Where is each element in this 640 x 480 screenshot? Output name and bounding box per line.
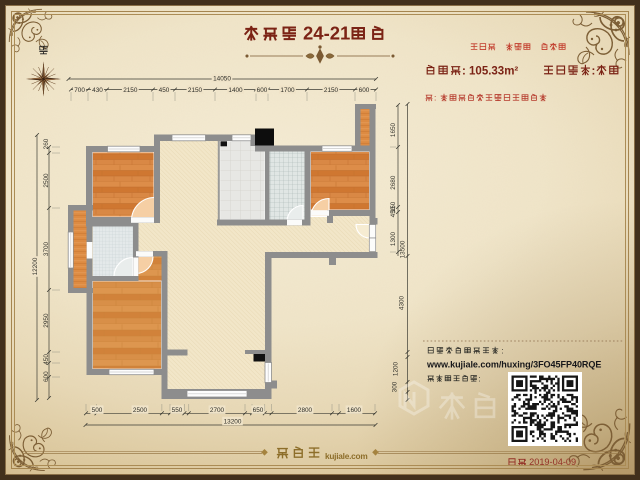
svg-text:500: 500 — [92, 407, 103, 414]
svg-text:550: 550 — [172, 407, 183, 414]
svg-text:2950: 2950 — [43, 313, 50, 328]
svg-text:1700: 1700 — [280, 87, 295, 94]
svg-text:2150: 2150 — [188, 87, 203, 94]
svg-text:1600: 1600 — [347, 407, 362, 414]
svg-text:2150: 2150 — [123, 87, 138, 94]
svg-text:2680: 2680 — [390, 175, 397, 190]
svg-text:450: 450 — [159, 87, 170, 94]
svg-text:700: 700 — [74, 87, 85, 94]
svg-text::: : — [434, 93, 436, 103]
svg-text:13200: 13200 — [224, 418, 242, 425]
svg-text:260: 260 — [43, 138, 50, 149]
svg-text::: : — [502, 347, 504, 356]
svg-text:1400: 1400 — [228, 87, 243, 94]
svg-text:450: 450 — [43, 354, 50, 365]
svg-text:600: 600 — [257, 87, 268, 94]
svg-text:: 2019-04-09: : 2019-04-09 — [524, 457, 576, 467]
svg-text:12200: 12200 — [32, 257, 39, 275]
svg-text::: : — [479, 375, 481, 384]
svg-text:2150: 2150 — [324, 87, 339, 94]
svg-text::: : — [592, 66, 596, 78]
svg-text:13500: 13500 — [399, 240, 406, 258]
svg-text:2500: 2500 — [133, 407, 148, 414]
svg-text:3700: 3700 — [43, 241, 50, 256]
svg-text:2500: 2500 — [43, 173, 50, 188]
svg-text:kujiale.com: kujiale.com — [325, 451, 367, 461]
svg-text:14050: 14050 — [213, 75, 231, 82]
svg-text:www.kujiale.com/huxing/3FO45FP: www.kujiale.com/huxing/3FO45FP40RQE — [426, 360, 601, 370]
svg-text:650: 650 — [253, 407, 264, 414]
svg-text:: 105.33m²: : 105.33m² — [462, 66, 518, 78]
svg-text:450: 450 — [390, 206, 397, 217]
svg-text:1300: 1300 — [390, 231, 397, 246]
svg-text:2700: 2700 — [210, 407, 225, 414]
svg-text:4300: 4300 — [398, 295, 405, 310]
svg-text:600: 600 — [43, 371, 50, 382]
svg-text:300: 300 — [391, 381, 398, 392]
svg-text:1650: 1650 — [390, 122, 397, 137]
svg-text:1200: 1200 — [392, 361, 399, 376]
svg-text:430: 430 — [92, 87, 103, 94]
svg-text:24-21: 24-21 — [303, 23, 350, 44]
svg-text:2800: 2800 — [298, 407, 313, 414]
svg-text:600: 600 — [359, 87, 370, 94]
